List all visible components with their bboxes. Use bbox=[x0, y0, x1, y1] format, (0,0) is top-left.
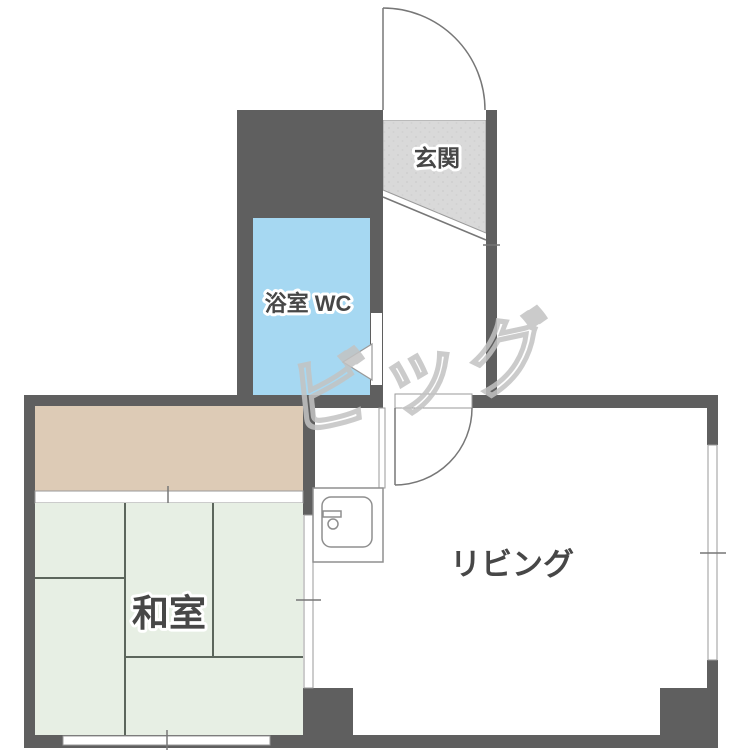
genkan-floor-texture bbox=[383, 120, 486, 233]
washitsu-sliding-door bbox=[304, 515, 313, 688]
corner-wall-stub bbox=[303, 688, 353, 748]
washitsu-label: 和室 bbox=[132, 592, 206, 634]
living-label: リビング bbox=[450, 547, 574, 582]
upper-wall-block bbox=[237, 110, 383, 218]
closet-sliding-door bbox=[35, 491, 303, 503]
entry-door-opening bbox=[383, 110, 486, 120]
kitchen-faucet-icon bbox=[323, 511, 341, 517]
bath-left-wall bbox=[237, 218, 253, 408]
genkan-label: 玄関 bbox=[414, 145, 460, 171]
floorplan-canvas: ビッグ 玄関 浴室 WC 和室 リビング bbox=[0, 0, 750, 750]
left-wall bbox=[24, 395, 35, 748]
closet-floor bbox=[35, 406, 303, 491]
right-wall-upper bbox=[707, 395, 718, 445]
floorplan-svg: ビッグ 玄関 浴室 WC 和室 リビング bbox=[0, 0, 750, 750]
kitchen-faucet-knob-icon bbox=[328, 519, 338, 529]
genkan-floor bbox=[383, 120, 486, 240]
entry-door bbox=[383, 8, 486, 120]
entry-door-swing-arc bbox=[383, 8, 485, 110]
bottom-right-wall-block bbox=[660, 688, 718, 748]
bathroom-label: 浴室 WC bbox=[265, 291, 352, 316]
